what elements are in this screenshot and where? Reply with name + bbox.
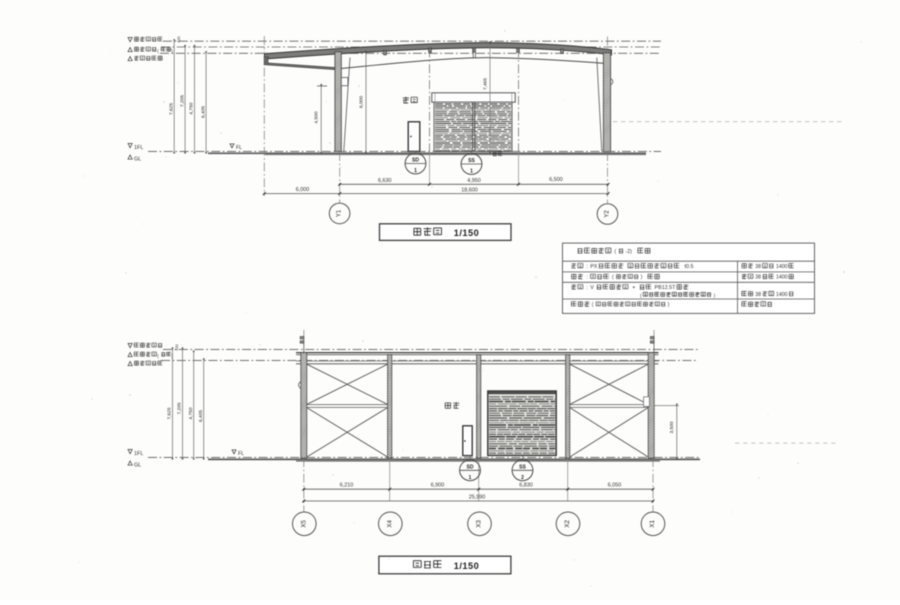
svg-text:38: 38 [755,275,761,281]
svg-text:6,405: 6,405 [198,410,204,422]
svg-text:1400: 1400 [776,292,788,298]
svg-text:4,750: 4,750 [188,407,194,419]
svg-text:(: ( [612,275,614,281]
svg-text::: : [586,275,588,281]
svg-text:SD: SD [412,158,419,164]
svg-text:SS: SS [468,158,475,164]
svg-text:FL: FL [238,451,244,457]
svg-text:38: 38 [755,292,761,298]
svg-text:X4: X4 [386,519,393,527]
svg-text:2: 2 [521,475,524,481]
svg-text:1: 1 [470,169,473,175]
svg-text:t0.5: t0.5 [685,264,694,270]
svg-text:FL: FL [236,145,242,151]
svg-text:1: 1 [414,168,417,174]
svg-text:PX: PX [590,264,598,270]
svg-text:6,210: 6,210 [340,483,354,489]
svg-text:7,205: 7,205 [177,402,183,414]
svg-text:X1: X1 [649,519,656,527]
svg-text::: : [586,285,588,291]
svg-text:Y1: Y1 [337,209,343,217]
svg-text:1400: 1400 [776,275,788,281]
svg-text:6,630: 6,630 [378,178,392,184]
svg-text:+: + [632,285,635,291]
svg-text:6,405: 6,405 [200,106,206,118]
svg-text:6,830: 6,830 [519,483,533,489]
svg-text:6,000: 6,000 [296,187,310,193]
svg-text:PB12.5T: PB12.5T [655,285,677,291]
svg-text:18,600: 18,600 [461,187,478,193]
svg-text:SS: SS [519,465,526,471]
svg-text:3,500: 3,500 [669,421,675,433]
svg-text:4,950: 4,950 [467,178,481,184]
svg-text:4,500: 4,500 [313,111,319,123]
svg-text:6,900: 6,900 [431,483,445,489]
svg-text:6,000: 6,000 [358,96,364,108]
svg-text::: : [586,264,588,270]
svg-text:7,465: 7,465 [483,78,489,90]
svg-text:6,050: 6,050 [608,483,622,489]
svg-text:6,500: 6,500 [549,177,563,183]
svg-text:1FL: 1FL [134,451,143,457]
svg-text:420: 420 [177,36,181,42]
svg-text:420: 420 [175,344,179,350]
svg-text:7,625: 7,625 [167,407,173,419]
svg-text:7,205: 7,205 [179,95,185,107]
svg-text:1FL: 1FL [134,145,143,151]
svg-text:(: ( [157,49,159,54]
svg-text:38: 38 [755,264,761,270]
svg-text:GL: GL [134,463,141,469]
svg-text:): ) [641,275,643,281]
svg-text:1400: 1400 [776,264,788,270]
svg-text:7,625: 7,625 [168,103,174,115]
svg-text:-2): -2) [626,249,633,255]
svg-text:): ) [171,49,173,54]
svg-text:4,750: 4,750 [189,102,195,114]
svg-text:1/150: 1/150 [454,561,480,571]
svg-text:1: 1 [469,475,472,481]
svg-text:25,990: 25,990 [469,495,486,501]
svg-text:(: ( [614,249,616,255]
svg-text:1/150: 1/150 [454,228,480,238]
svg-text:X3: X3 [476,519,483,527]
svg-text:(: ( [157,354,159,359]
svg-text:X2: X2 [564,519,571,527]
svg-text:X5: X5 [300,519,307,527]
svg-text:SD: SD [467,465,474,471]
svg-text:Y2: Y2 [605,210,611,218]
svg-text:GL: GL [134,157,141,163]
svg-text:V: V [590,285,594,291]
